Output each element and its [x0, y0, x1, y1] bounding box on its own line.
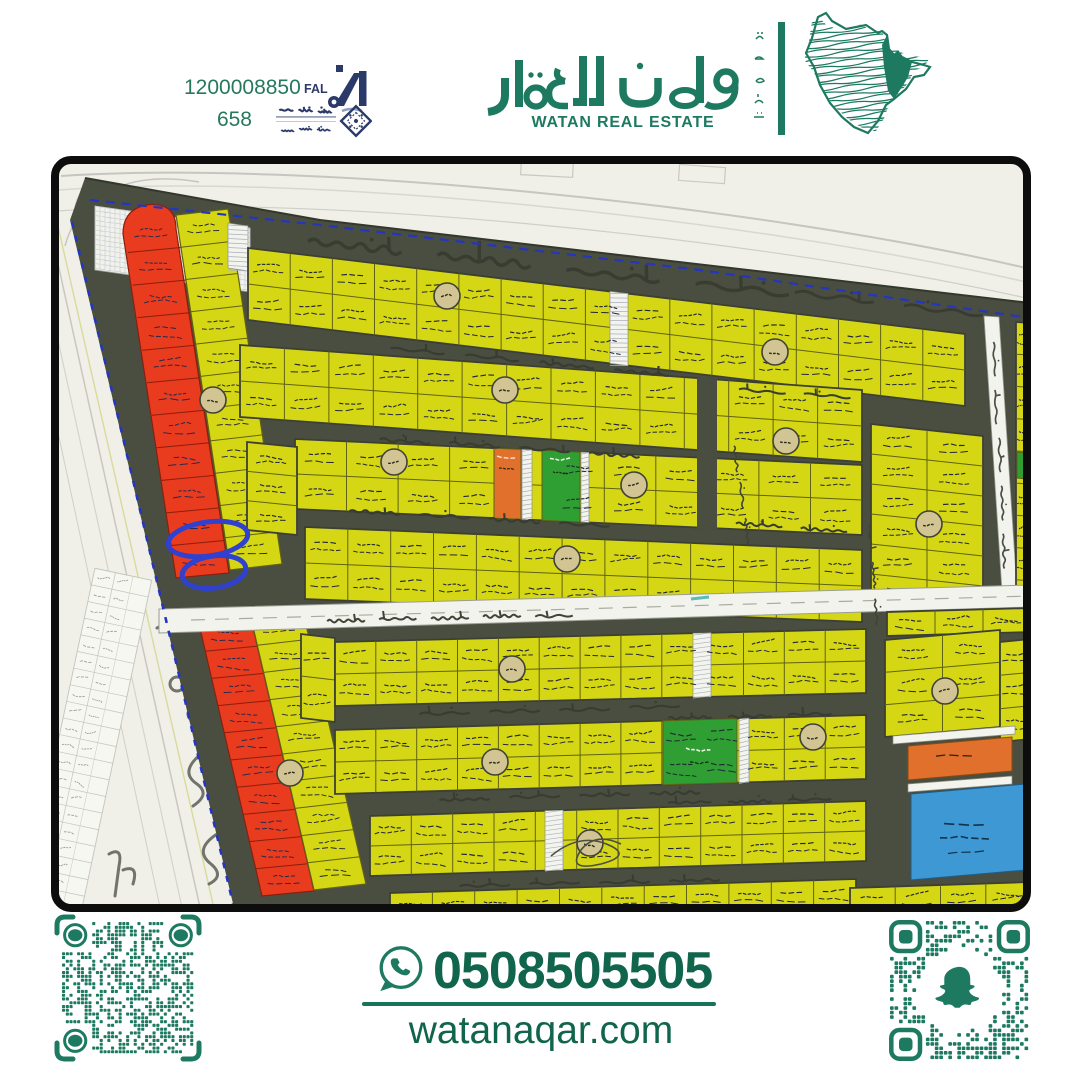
svg-text:FAL: FAL [304, 82, 328, 96]
svg-text:watanaqar.com: watanaqar.com [408, 1009, 674, 1052]
svg-text:0508505505: 0508505505 [433, 942, 712, 1000]
